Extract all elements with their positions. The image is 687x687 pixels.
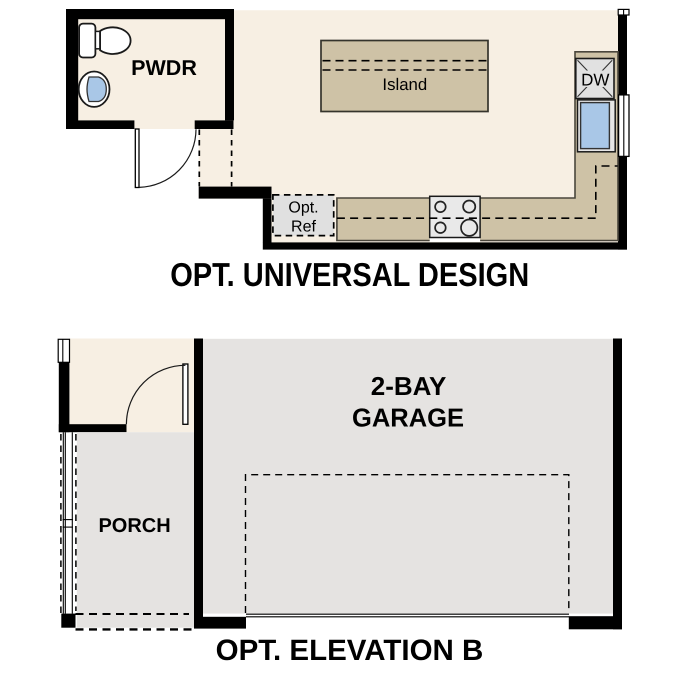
svg-text:OPT. UNIVERSAL DESIGN: OPT. UNIVERSAL DESIGN (170, 257, 529, 294)
svg-text:Opt.: Opt. (288, 199, 318, 216)
svg-text:PORCH: PORCH (98, 515, 170, 537)
svg-text:OPT. ELEVATION B: OPT. ELEVATION B (216, 634, 484, 667)
svg-text:Island: Island (382, 75, 427, 94)
svg-text:2-BAY: 2-BAY (371, 371, 447, 401)
svg-text:Ref: Ref (291, 218, 316, 235)
svg-text:PWDR: PWDR (131, 56, 197, 80)
svg-text:DW: DW (581, 71, 609, 90)
svg-text:GARAGE: GARAGE (352, 402, 464, 432)
